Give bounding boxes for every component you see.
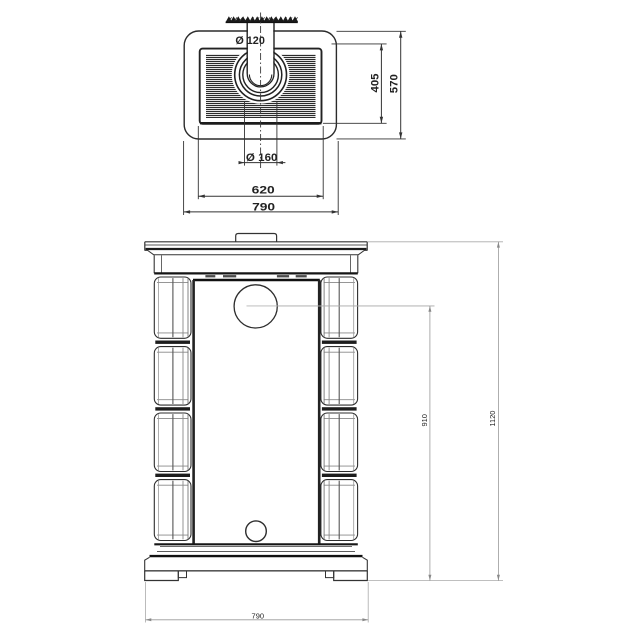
svg-text:910: 910 [420, 414, 429, 427]
svg-text:790: 790 [252, 611, 265, 620]
svg-text:1120: 1120 [488, 411, 497, 427]
svg-text:Ø 160: Ø 160 [246, 152, 278, 164]
svg-text:570: 570 [388, 74, 400, 93]
svg-text:790: 790 [252, 201, 275, 213]
svg-text:620: 620 [252, 185, 275, 197]
svg-text:Ø 120: Ø 120 [235, 35, 265, 47]
svg-text:405: 405 [370, 74, 382, 93]
